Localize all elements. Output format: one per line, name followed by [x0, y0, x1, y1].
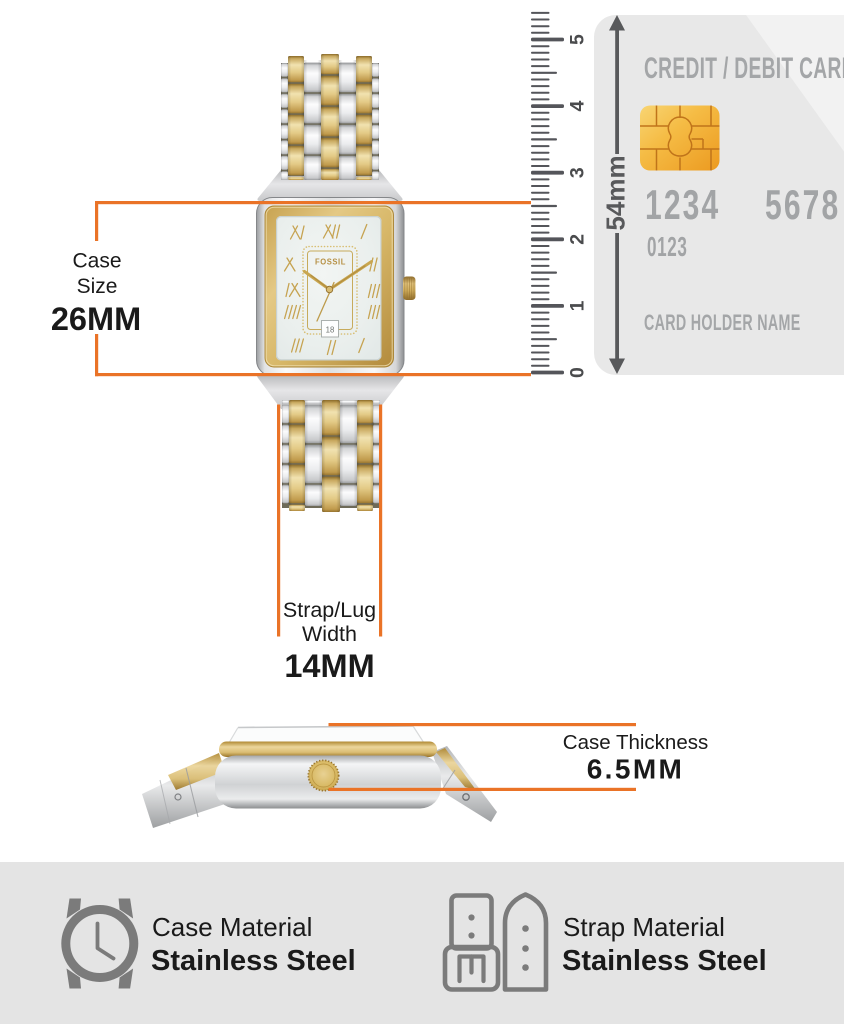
svg-text:6.5MM: 6.5MM	[587, 754, 685, 785]
svg-text:1: 1	[567, 300, 589, 311]
svg-text:Case Material: Case Material	[152, 912, 312, 942]
svg-text:2: 2	[567, 234, 589, 245]
svg-text:Size: Size	[77, 275, 118, 298]
svg-text:26MM: 26MM	[51, 301, 141, 337]
svg-text:54mm: 54mm	[601, 155, 631, 230]
svg-text:0: 0	[567, 367, 589, 378]
svg-text:0123: 0123	[647, 231, 687, 262]
svg-text:18: 18	[326, 326, 335, 335]
svg-text:3: 3	[567, 167, 589, 178]
svg-text:Case Thickness: Case Thickness	[563, 731, 708, 754]
svg-text:5678: 5678	[765, 181, 840, 228]
svg-text:Stainless Steel: Stainless Steel	[562, 945, 767, 977]
svg-text:Case: Case	[72, 250, 121, 273]
svg-text:CREDIT / DEBIT CARD: CREDIT / DEBIT CARD	[644, 52, 844, 85]
svg-text:FOSSIL: FOSSIL	[315, 257, 346, 266]
svg-text:Stainless Steel: Stainless Steel	[151, 945, 356, 977]
svg-text:Width: Width	[302, 622, 357, 646]
svg-text:Strap/Lug: Strap/Lug	[283, 598, 376, 622]
svg-text:Strap Material: Strap Material	[563, 912, 725, 942]
svg-text:CARD HOLDER NAME: CARD HOLDER NAME	[644, 310, 801, 335]
svg-text:5: 5	[567, 34, 589, 45]
svg-text:4: 4	[567, 101, 589, 112]
svg-text:1234: 1234	[645, 181, 720, 228]
svg-text:14MM: 14MM	[284, 648, 374, 684]
